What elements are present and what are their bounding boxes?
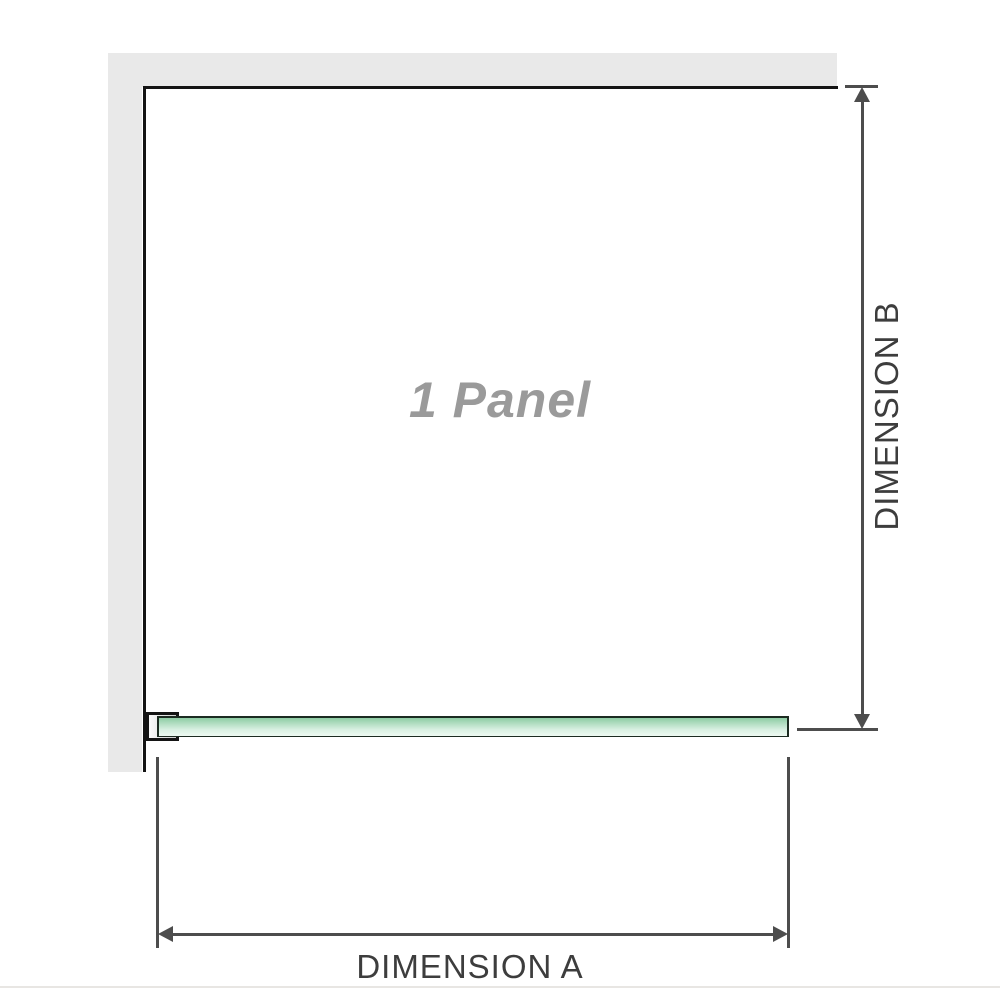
wall-left-bar — [108, 53, 142, 772]
dimension-b-arrowhead-up-icon — [854, 87, 870, 102]
dimension-a-label: DIMENSION A — [290, 949, 650, 985]
dimension-diagram: 1 Panel DIMENSION B DIMENSION A — [0, 0, 1000, 1000]
dimension-b-line — [861, 97, 864, 717]
dimension-a-arrowhead-left-icon — [158, 926, 173, 942]
bottom-divider — [0, 986, 1000, 988]
dimension-b-label: DIMENSION B — [870, 236, 904, 596]
dimension-a-arrowhead-right-icon — [773, 926, 788, 942]
dimension-a-line — [170, 933, 778, 936]
dimension-a-extension-right — [787, 757, 790, 948]
dimension-b-arrowhead-down-icon — [854, 714, 870, 729]
wall-top-bar — [108, 53, 837, 87]
dimension-a-extension-left — [156, 757, 159, 948]
panel-count-label: 1 Panel — [350, 365, 650, 435]
glass-panel — [157, 716, 789, 737]
